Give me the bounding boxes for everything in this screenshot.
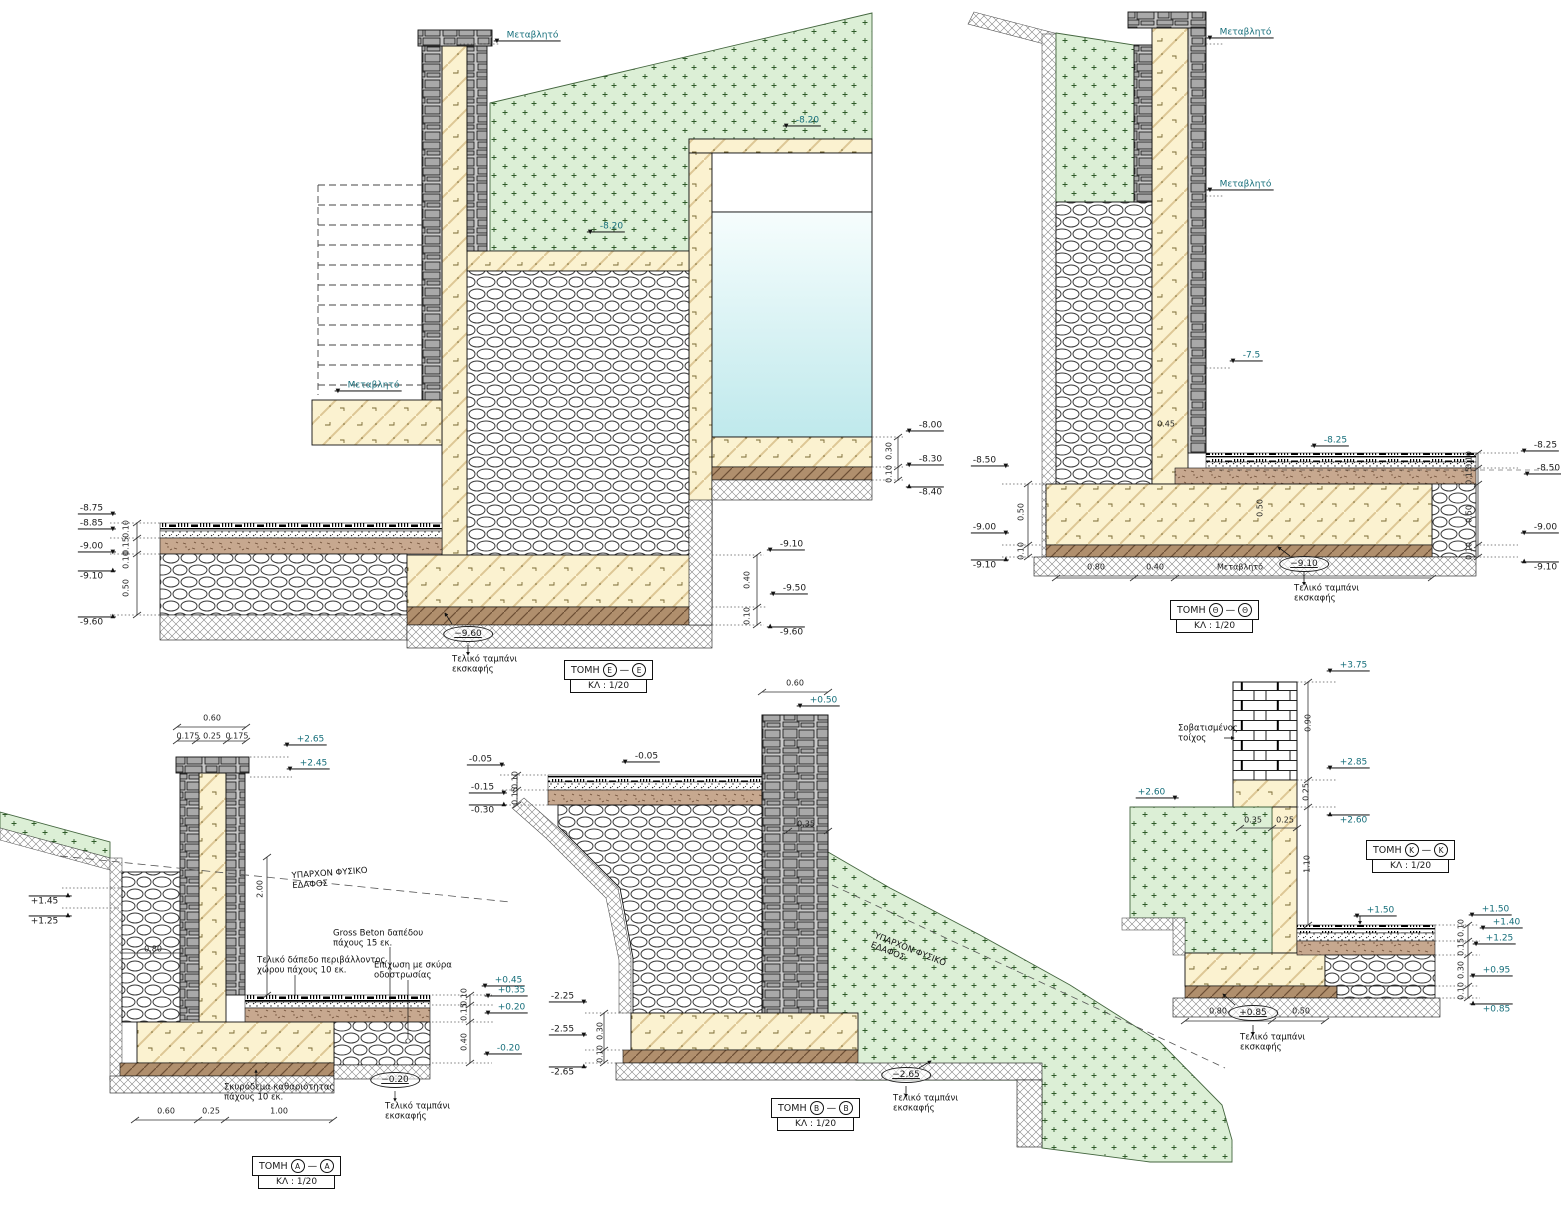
dimension-label-th-39: 0.50 xyxy=(1466,505,1475,523)
section-bb-title: ΤΟΜΗΒ—ΒΚΛ : 1/20 xyxy=(771,1098,860,1131)
elevation-label-ee-4: -8.75▼ xyxy=(78,503,116,514)
section-title-word: ΤΟΜΗ xyxy=(1373,845,1402,856)
dimension-label-kk-105: 0.30 xyxy=(1458,961,1467,979)
elevation-label-bb-85: -2.55▼ xyxy=(549,1024,587,1035)
section-title-word: ΤΟΜΗ xyxy=(778,1103,807,1114)
level-arrow-down-icon: ▼ xyxy=(485,1052,490,1058)
dimension-label-kk-91: 0.90 xyxy=(1305,714,1314,732)
level-arrow-down-icon: ▼ xyxy=(502,791,507,797)
level-arrow-down-icon: ▼ xyxy=(486,994,491,1000)
level-arrow-down-icon: ▼ xyxy=(582,1000,587,1006)
dimension-label-th-43: 0.80 xyxy=(1087,564,1105,573)
level-arrow-down-icon: ▼ xyxy=(1470,913,1475,919)
note-label-aa-60: Επίχωση με σκύρα οδοστρωσίας xyxy=(374,961,452,980)
note-label-aa-58: Gross Beton δαπέδου πάχους 15 εκ. xyxy=(333,929,423,948)
elevation-label-ee-2: -8.20▼ xyxy=(587,221,625,232)
dimension-label-bb-79: 0.15 xyxy=(512,787,521,805)
elevation-label-ee-18: -9.10▼ xyxy=(767,539,805,550)
dimension-label-aa-56: 0.80 xyxy=(144,946,162,955)
section-letter-circle: Κ xyxy=(1434,843,1448,857)
level-arrow-down-icon: ▼ xyxy=(771,592,776,598)
note-label-kk-111: Τελικό ταμπάνι εκσκαφής xyxy=(1240,1033,1305,1052)
section-letter-circle: Ε xyxy=(603,663,617,677)
note-label-aa-59: Τελικό δάπεδο περιβάλλοντος χώρου πάχους… xyxy=(257,956,386,975)
note-label-bb-88: Τελικό ταμπάνι εκσκαφής xyxy=(893,1094,958,1113)
elevation-label-th-30: -8.50▼ xyxy=(971,455,1009,466)
section-ee-title: ΤΟΜΗΕ—ΕΚΛ : 1/20 xyxy=(564,660,653,693)
section-scale: ΚΛ : 1/20 xyxy=(1176,620,1252,633)
dimension-label-bb-84: 0.30 xyxy=(597,1022,606,1040)
dimension-label-kk-107: 0.10 xyxy=(1458,982,1467,1000)
level-arrow-up-icon: ▲ xyxy=(907,483,912,489)
dimension-label-kk-103: 0.15 xyxy=(1458,938,1467,956)
elevation-label-th-37: -8.50▼ xyxy=(1524,463,1561,474)
elevation-label-kk-108: +0.85▲ xyxy=(1470,1003,1513,1014)
dimension-label-th-28: 0.45 xyxy=(1157,421,1175,430)
elevation-label-bb-83: -2.25▼ xyxy=(549,991,587,1002)
section-title-dash: — xyxy=(1226,605,1236,616)
elevation-label-th-35: -8.25▼ xyxy=(1521,440,1559,451)
section-title-dash: — xyxy=(1422,845,1432,856)
level-arrow-down-icon: ▼ xyxy=(111,527,116,533)
section-kk-title: ΤΟΜΗΚ—ΚΚΛ : 1/20 xyxy=(1366,840,1455,873)
elevation-label-aa-67: -0.20▼ xyxy=(484,1043,522,1054)
annotation-layer: Μεταβλητό▼-8.20▼-8.20▼Μεταβλητό▼-8.75▼-8… xyxy=(0,0,1561,1208)
elevation-label-ee-20: -9.50▼ xyxy=(770,583,808,594)
dimension-label-kk-109: 0.80 xyxy=(1209,1008,1227,1017)
section-title-word: ΤΟΜΗ xyxy=(1177,605,1206,616)
elevation-label-aa-51: +2.65▼ xyxy=(284,734,327,745)
elevation-label-ee-13: -8.00▼ xyxy=(906,420,944,431)
dimension-label-aa-66: 0.40 xyxy=(461,1033,470,1051)
dimension-label-aa-49: 0.25 xyxy=(203,733,221,742)
elevation-label-bb-78: -0.15▼ xyxy=(469,782,507,793)
level-arrow-down-icon: ▼ xyxy=(798,704,803,710)
level-arrow-down-icon: ▼ xyxy=(1481,926,1486,932)
dimension-label-aa-70: 0.60 xyxy=(157,1108,175,1117)
level-ellipse-kk: +0.85 xyxy=(1228,1005,1278,1021)
level-arrow-down-icon: ▼ xyxy=(1312,444,1317,450)
section-aa-title: ΤΟΜΗΑ—ΑΚΛ : 1/20 xyxy=(252,1156,341,1189)
section-letter-circle: Θ xyxy=(1238,603,1252,617)
level-arrow-down-icon: ▼ xyxy=(784,124,789,130)
level-arrow-down-icon: ▼ xyxy=(623,760,628,766)
elevation-label-kk-106: +0.95▼ xyxy=(1470,965,1513,976)
section-title-dash: — xyxy=(308,1161,318,1172)
dimension-label-th-31: 0.50 xyxy=(1018,503,1027,521)
note-label-th-46: Τελικό ταμπάνι εκσκαφής xyxy=(1294,584,1359,603)
level-arrow-down-icon: ▼ xyxy=(111,550,116,556)
level-arrow-up-icon: ▲ xyxy=(1004,556,1009,562)
level-arrow-up-icon: ▲ xyxy=(111,613,116,619)
elevation-label-th-25: Μεταβλητό▼ xyxy=(1207,179,1274,190)
level-arrow-up-icon: ▲ xyxy=(111,567,116,573)
dimension-label-kk-97: 0.25 xyxy=(1276,817,1294,826)
section-th-title: ΤΟΜΗΘ—ΘΚΛ : 1/20 xyxy=(1170,600,1259,633)
level-arrow-down-icon: ▼ xyxy=(1355,914,1360,920)
section-letter-circle: Ε xyxy=(632,663,646,677)
elevation-label-ee-5: -8.85▼ xyxy=(78,518,116,529)
elevation-label-aa-65: +0.20▼ xyxy=(485,1002,528,1013)
dimension-label-bb-86: 0.10 xyxy=(597,1045,606,1063)
section-letter-circle: Β xyxy=(810,1101,824,1115)
elevation-label-th-40: -9.00▼ xyxy=(1521,522,1559,533)
elevation-label-th-42: -9.10▲ xyxy=(1521,561,1559,572)
note-label-aa-68: Σκυρόδεμα καθαριότητας πάχους 10 εκ. xyxy=(224,1083,335,1102)
elevation-label-kk-102: +1.40▼ xyxy=(1480,917,1523,928)
elevation-label-kk-92: +2.85▼ xyxy=(1327,757,1370,768)
section-title-dash: — xyxy=(620,665,630,676)
level-arrow-down-icon: ▼ xyxy=(1522,449,1527,455)
section-scale: ΚΛ : 1/20 xyxy=(1372,860,1448,873)
level-arrow-down-icon: ▼ xyxy=(1471,974,1476,980)
level-arrow-down-icon: ▼ xyxy=(582,1033,587,1039)
dimension-label-aa-64: 0.15 xyxy=(461,1003,470,1021)
elevation-label-aa-52: +2.45▼ xyxy=(287,758,330,769)
elevation-label-ee-7: -9.10▲ xyxy=(78,570,116,581)
section-scale: ΚΛ : 1/20 xyxy=(258,1176,334,1189)
elevation-label-th-32: -9.00▼ xyxy=(971,522,1009,533)
elevation-label-kk-94: +2.60▼ xyxy=(1136,787,1179,798)
level-arrow-up-icon: ▲ xyxy=(66,912,71,918)
elevation-label-kk-99: +1.50▼ xyxy=(1354,905,1397,916)
elevation-label-bb-74: +0.50▼ xyxy=(797,695,840,706)
elevation-label-kk-104: +1.25▼ xyxy=(1473,933,1516,944)
level-arrow-down-icon: ▼ xyxy=(1173,796,1178,802)
elevation-label-ee-6: -9.00▼ xyxy=(78,541,116,552)
level-arrow-down-icon: ▼ xyxy=(288,767,293,773)
elevation-label-aa-63: +0.35▼ xyxy=(485,985,528,996)
elevation-label-aa-54: +1.45▲ xyxy=(29,895,72,906)
level-arrow-down-icon: ▼ xyxy=(285,743,290,749)
dimension-label-kk-101: 0.10 xyxy=(1458,919,1467,937)
dimension-label-ee-12: 0.50 xyxy=(123,579,132,597)
level-arrow-down-icon: ▼ xyxy=(1004,464,1009,470)
level-arrow-down-icon: ▼ xyxy=(1231,359,1236,365)
section-letter-circle: Β xyxy=(839,1101,853,1115)
note-label-aa-69: Τελικό ταμπάνι εκσκαφής xyxy=(385,1102,450,1121)
dimension-label-aa-71: 0.25 xyxy=(202,1108,220,1117)
level-arrow-down-icon: ▼ xyxy=(1525,472,1530,478)
level-arrow-up-icon: ▲ xyxy=(1471,1000,1476,1006)
dimension-label-aa-48: 0.175 xyxy=(177,733,200,742)
level-arrow-down-icon: ▼ xyxy=(495,39,500,45)
section-letter-circle: Α xyxy=(320,1159,334,1173)
dimension-label-th-44: 0.40 xyxy=(1146,564,1164,573)
dimension-label-kk-98: 1.10 xyxy=(1304,855,1313,873)
section-letter-circle: Κ xyxy=(1405,843,1419,857)
level-arrow-down-icon: ▼ xyxy=(1004,531,1009,537)
level-ellipse-ee: −9.60 xyxy=(443,626,493,642)
elevation-label-bb-80: -0.30▲ xyxy=(469,804,507,815)
dimension-label-ee-16: 0.10 xyxy=(886,465,895,483)
level-ellipse-th: −9.10 xyxy=(1279,556,1329,572)
elevation-label-th-26: -7.5▼ xyxy=(1230,350,1263,361)
note-label-aa-53: ΥΠΑΡΧΟΝ ΦΥΣΙΚΟ ΕΔΑΦΟΣ xyxy=(291,867,368,891)
level-arrow-down-icon: ▼ xyxy=(907,429,912,435)
section-letter-circle: Α xyxy=(291,1159,305,1173)
elevation-label-kk-89: +3.75▼ xyxy=(1327,660,1370,671)
level-arrow-up-icon: ▲ xyxy=(1522,558,1527,564)
level-arrow-up-icon: ▲ xyxy=(66,892,71,898)
section-letter-circle: Θ xyxy=(1209,603,1223,617)
elevation-label-th-27: -8.25▼ xyxy=(1311,435,1349,446)
elevation-label-ee-17: -8.40▲ xyxy=(906,486,944,497)
dimension-label-th-45: Μεταβλητό xyxy=(1217,564,1263,573)
elevation-label-kk-95: +2.60▲ xyxy=(1327,814,1370,825)
section-title-dash: — xyxy=(827,1103,837,1114)
dimension-label-ee-19: 0.40 xyxy=(744,571,753,589)
level-arrow-down-icon: ▼ xyxy=(111,512,116,518)
level-arrow-down-icon: ▼ xyxy=(486,1011,491,1017)
dimension-label-th-38: 0.15 xyxy=(1466,467,1475,485)
elevation-label-bb-75: -0.05▼ xyxy=(467,754,505,765)
elevation-label-bb-87: -2.65▲ xyxy=(549,1066,587,1077)
dimension-label-ee-14: 0.30 xyxy=(886,442,895,460)
note-label-kk-90: Σοβατισμένος τοίχος xyxy=(1178,724,1238,743)
note-label-ee-23: Τελικό ταμπάνι εκσκαφής xyxy=(452,655,517,674)
elevation-label-aa-55: +1.25▲ xyxy=(29,915,72,926)
level-arrow-down-icon: ▼ xyxy=(1208,188,1213,194)
dimension-label-ee-9: 0.10 xyxy=(123,520,132,538)
elevation-label-ee-22: -9.60▲ xyxy=(767,626,805,637)
level-arrow-up-icon: ▲ xyxy=(582,1063,587,1069)
level-arrow-down-icon: ▼ xyxy=(500,763,505,769)
dimension-label-aa-72: 1.00 xyxy=(270,1108,288,1117)
level-arrow-down-icon: ▼ xyxy=(768,548,773,554)
dimension-label-ee-21: 0.10 xyxy=(744,607,753,625)
level-arrow-down-icon: ▼ xyxy=(1328,766,1333,772)
section-title-word: ΤΟΜΗ xyxy=(571,665,600,676)
section-title-word: ΤΟΜΗ xyxy=(259,1161,288,1172)
elevation-label-bb-76: -0.05▼ xyxy=(622,751,660,762)
note-label-bb-82: ΥΠΑΡΧΟΝ ΦΥΣΙΚΟ ΕΔΑΦΟΣ xyxy=(869,932,947,978)
elevation-label-kk-100: +1.50▼ xyxy=(1469,904,1512,915)
level-arrow-down-icon: ▼ xyxy=(1208,36,1213,42)
elevation-label-ee-8: -9.60▲ xyxy=(78,616,116,627)
drawing-sheet: Μεταβλητό▼-8.20▼-8.20▼Μεταβλητό▼-8.75▼-8… xyxy=(0,0,1561,1208)
level-arrow-down-icon: ▼ xyxy=(588,230,593,236)
dimension-label-th-33: 0.10 xyxy=(1018,542,1027,560)
dimension-label-aa-47: 0.60 xyxy=(203,715,221,724)
dimension-label-aa-50: 0.175 xyxy=(226,733,249,742)
dimension-label-th-41: 0.10 xyxy=(1466,542,1475,560)
section-scale: ΚΛ : 1/20 xyxy=(570,680,646,693)
level-ellipse-bb: −2.65 xyxy=(881,1067,931,1083)
level-ellipse-aa: −0.20 xyxy=(370,1072,420,1088)
level-arrow-up-icon: ▲ xyxy=(1328,811,1333,817)
elevation-label-ee-0: Μεταβλητό▼ xyxy=(494,30,561,41)
level-arrow-down-icon: ▼ xyxy=(907,463,912,469)
dimension-label-bb-73: 0.60 xyxy=(786,680,804,689)
level-arrow-down-icon: ▼ xyxy=(1522,531,1527,537)
dimension-label-kk-110: 0.50 xyxy=(1292,1008,1310,1017)
dimension-label-bb-81: 0.35 xyxy=(797,821,815,830)
elevation-label-th-24: Μεταβλητό▼ xyxy=(1207,27,1274,38)
level-arrow-down-icon: ▼ xyxy=(1328,669,1333,675)
level-arrow-down-icon: ▼ xyxy=(336,389,341,395)
level-arrow-up-icon: ▲ xyxy=(768,623,773,629)
dimension-label-kk-96: 0.35 xyxy=(1244,817,1262,826)
elevation-label-ee-15: -8.30▼ xyxy=(906,454,944,465)
elevation-label-th-34: -9.10▲ xyxy=(971,559,1009,570)
level-arrow-down-icon: ▼ xyxy=(1474,942,1479,948)
dimension-label-kk-93: 0.25 xyxy=(1303,783,1312,801)
level-arrow-up-icon: ▲ xyxy=(502,801,507,807)
elevation-label-ee-3: Μεταβλητό▼ xyxy=(335,380,402,391)
section-scale: ΚΛ : 1/20 xyxy=(777,1118,853,1131)
dimension-label-aa-57: 2.00 xyxy=(257,880,266,898)
dimension-label-th-29: 0.50 xyxy=(1257,499,1266,517)
dimension-label-ee-11: 0.10 xyxy=(123,551,132,569)
elevation-label-ee-1: -8.20▼ xyxy=(783,115,821,126)
